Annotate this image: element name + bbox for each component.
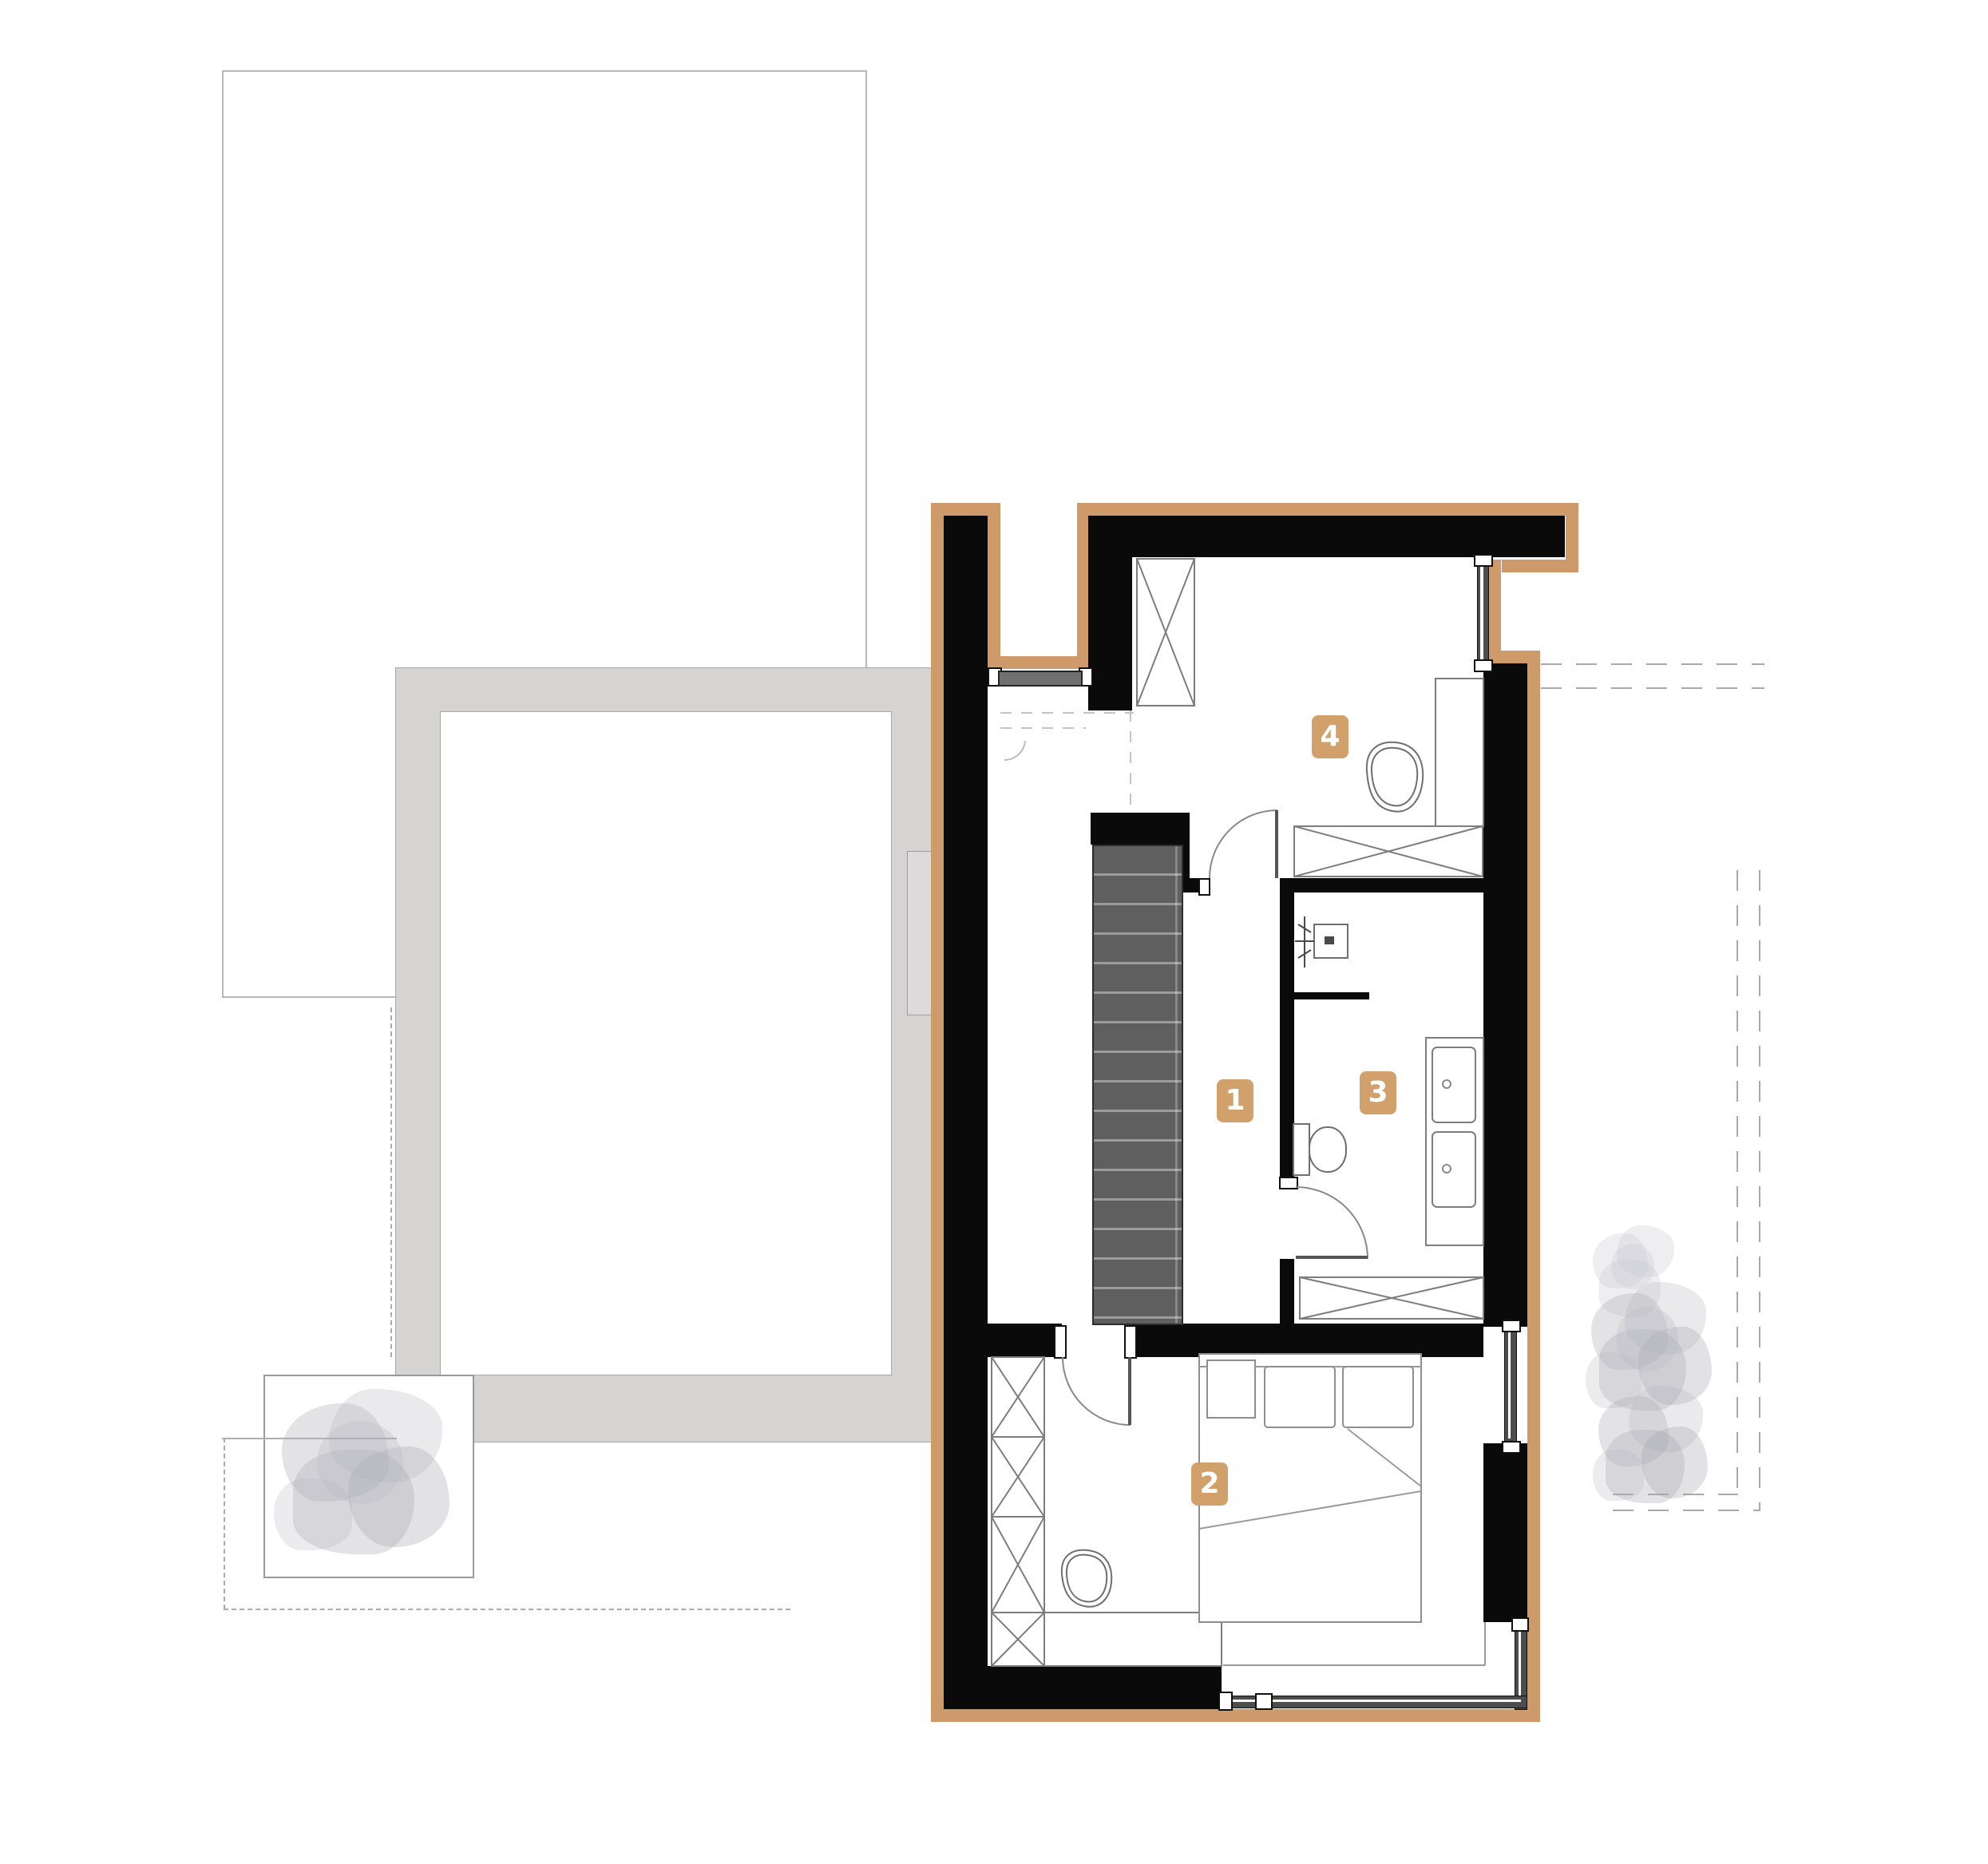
pouf-icon — [1367, 742, 1423, 812]
room-number: 4 — [1320, 722, 1340, 751]
window-sill-line — [1223, 1622, 1485, 1665]
wardrobe-icon — [1137, 559, 1194, 706]
room-badge-3: 3 — [1360, 1071, 1396, 1114]
room-number: 3 — [1368, 1078, 1388, 1107]
pouf-icon — [1062, 1550, 1111, 1607]
shower-icon — [1295, 916, 1348, 968]
ceiling-line — [1000, 710, 1134, 810]
floor-plan-canvas: 1 2 3 4 — [0, 0, 1988, 1864]
bed-icon — [1199, 1354, 1421, 1622]
furniture-layer — [0, 0, 1988, 1864]
room-number: 2 — [1199, 1470, 1219, 1498]
door-bedroom — [1063, 1357, 1131, 1425]
room-badge-1: 1 — [1217, 1079, 1253, 1122]
toilet-icon — [1293, 1124, 1346, 1175]
door-bathroom — [1296, 1187, 1368, 1259]
wardrobe-icon — [1300, 1277, 1483, 1319]
desk — [1044, 1613, 1222, 1666]
wardrobe-icon — [992, 1357, 1044, 1666]
room-badge-4: 4 — [1312, 715, 1348, 758]
counter — [1436, 679, 1483, 826]
door-room4 — [1210, 810, 1277, 878]
vanity-sinks-icon — [1426, 1038, 1483, 1245]
room-number: 1 — [1225, 1086, 1245, 1115]
wardrobe-icon — [1294, 826, 1483, 877]
room-badge-2: 2 — [1191, 1462, 1228, 1506]
